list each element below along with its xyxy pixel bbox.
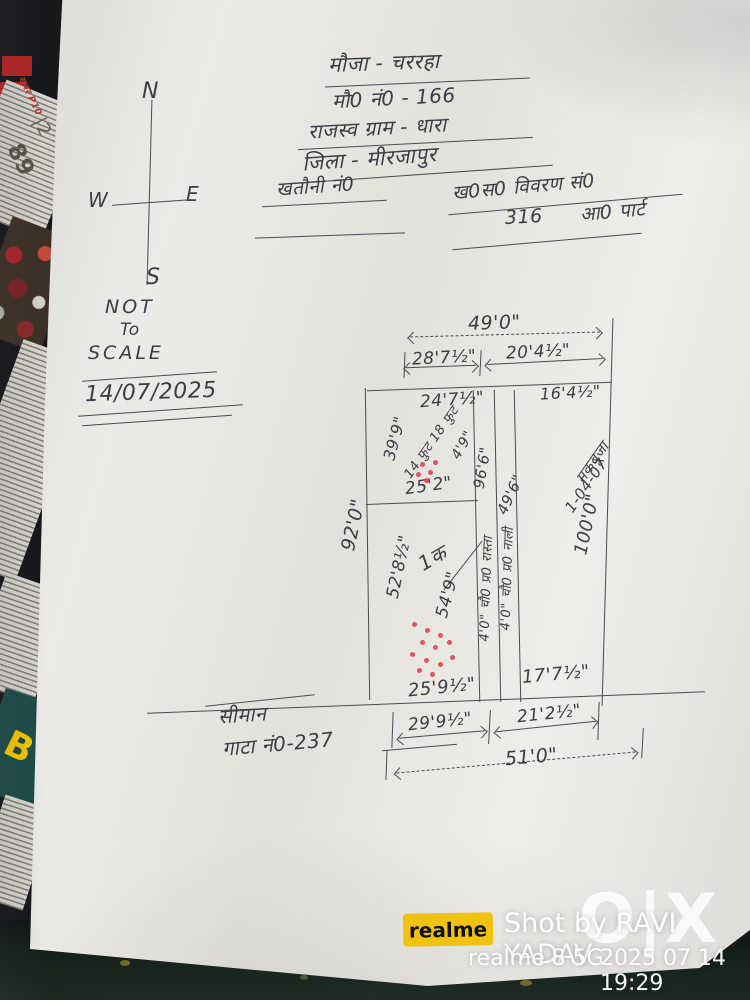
dim-strip-a: 96'6" [472,446,495,490]
compass-vertical-line [147,100,153,285]
sketch-date: 14/07/2025 [85,379,218,407]
dim-tick [488,710,491,744]
compass-east-label: E [186,184,199,205]
dim-top-total: 49'0" [468,313,521,335]
dim-left-outer: 92'0" [339,497,369,553]
dim-tick [391,712,393,748]
plot-left-boundary [365,388,370,700]
header-khasra-number: 316 [505,207,544,229]
header-revenue-village: राजस्व ग्राम - धारा [308,114,448,142]
strip-drain-label: 4'0" चौ0 प्र0 नाली [499,504,518,654]
device-watermark: realme 8 5G [468,946,604,971]
note-not: NOT [105,298,155,318]
dim-plot1-bottom: 25'9½" [407,675,477,701]
compass-horizontal-line [112,199,190,205]
note-to: To [120,322,140,340]
sketch-layer: मौजा - चररहा मौ0 नं0 - 166 राजस्व ग्राम … [0,0,750,1000]
realme-badge: realme [403,912,494,947]
small-plot-divider [366,500,478,505]
header-mauja: मौजा - चररहा [328,50,440,76]
underline [452,233,641,251]
dim-tick [641,728,644,758]
datetime-watermark: 2025 07 14 19:29 [600,946,750,996]
dim-tick [479,350,481,376]
dim-plot1-right: 54'9" [434,570,464,620]
dim-tick [385,750,387,780]
header-khasra-part: आ0 पार्ट [579,200,646,226]
dim-inner-top-right: 16'4½" [540,383,602,403]
header-khasra-label: ख0स0 विवरण सं0 [451,172,595,204]
dim-bottom-total: 51'0" [504,746,558,770]
header-plot-number: मौ0 नं0 - 166 [332,85,457,112]
compass-south-label: S [146,266,160,289]
plot-right-boundary [602,318,614,706]
boundary-plot-number: गाटा नं0-237 [221,729,334,760]
compass-west-label: W [88,190,108,211]
boundary-stroke [382,744,457,752]
dim-small-plot-side: 4'9" [449,429,477,462]
dim-right-plot-bottom: 17'7½" [521,663,590,688]
compass-north-label: N [142,80,159,103]
dim-small-plot-left: 39'9" [381,415,409,463]
boundary-label: सीमान [217,703,267,727]
note-scale: SCALE [88,344,164,364]
dim-top-right-seg: 20'4½" [506,342,571,363]
strip-road-label: 4'0" चौ0 प्र0 रास्ता [478,514,497,664]
dim-plot1-inner-left: 52'8½" [385,534,416,601]
dim-top-left-seg: 28'7½" [412,348,477,369]
underline [255,232,405,238]
underline [82,415,232,426]
header-khatauni-label: खतौनी नं0 [275,175,355,200]
underline [262,200,387,208]
dim-tick [597,702,599,740]
